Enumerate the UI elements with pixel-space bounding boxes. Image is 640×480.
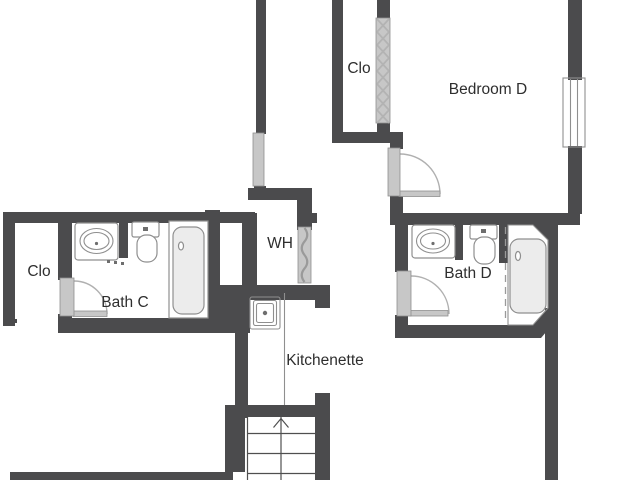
bath-d-door-panel — [410, 311, 448, 317]
wall-segment — [390, 213, 580, 225]
wall-segment — [242, 213, 257, 300]
window-frame — [563, 78, 585, 147]
dash-mark — [114, 261, 117, 264]
toilet-tank-lever — [143, 227, 148, 231]
wall-segment — [568, 146, 582, 214]
toilet-bowl — [474, 237, 495, 264]
closet-sliding-door — [376, 18, 390, 123]
bath-c-toilet — [132, 222, 159, 262]
room-label-bath-c: Bath C — [101, 294, 148, 311]
wall-segment — [377, 0, 390, 19]
wall-segment — [58, 212, 72, 280]
tub-basin — [173, 227, 204, 314]
hall-doorway — [253, 133, 264, 186]
bedroom-d-door-panel — [399, 191, 440, 197]
tub-basin — [510, 239, 546, 313]
wall-segment — [315, 295, 330, 308]
wall-segment — [8, 319, 17, 323]
wall-segment — [254, 186, 266, 194]
wall-segment — [332, 132, 403, 143]
wall-segment — [315, 393, 330, 405]
bedroom-d-door-swing-arc — [400, 154, 440, 194]
tub-faucet — [516, 252, 521, 261]
bath-d-tub-alcove — [506, 225, 549, 325]
wall-segment — [307, 213, 317, 223]
room-label-wh: WH — [267, 235, 293, 252]
tub-faucet — [179, 242, 184, 250]
wall-segment — [225, 405, 245, 472]
dash-mark — [107, 260, 110, 263]
sink-drain — [263, 311, 267, 315]
wall-segment — [58, 318, 220, 333]
wall-segment — [395, 325, 535, 338]
bedroom-d-window — [563, 78, 585, 147]
bath-c-door — [60, 278, 107, 317]
bath-d-toilet — [470, 225, 497, 264]
stairs — [248, 417, 316, 480]
floor-plan-page: Clo Bath C WH Kitchenette Clo Bedroom D … — [0, 0, 640, 480]
bath-c-door-jamb — [60, 278, 74, 316]
wall-segment — [545, 308, 558, 480]
wall-segment — [297, 188, 312, 230]
wall-segment — [395, 225, 408, 272]
wall-segment — [3, 212, 15, 326]
wall-divider — [499, 223, 508, 263]
bath-d-door-swing-arc — [411, 276, 449, 314]
kitchenette-fixtures — [250, 293, 285, 405]
bath-c-door-panel — [73, 311, 107, 317]
floor-plan: Clo Bath C WH Kitchenette Clo Bedroom D … — [0, 0, 640, 480]
wh-flex-door — [298, 227, 311, 283]
wall-segment — [256, 0, 266, 134]
wall-segment — [10, 472, 233, 480]
dash-mark — [121, 262, 124, 265]
room-label-closet-top: Clo — [347, 60, 370, 77]
kitchenette-sink — [250, 297, 280, 329]
bath-c-bathtub — [169, 221, 208, 318]
toilet-tank-lever — [481, 229, 486, 233]
bath-d-door — [397, 271, 449, 316]
bath-d-door-jamb — [397, 271, 411, 316]
sink-drain — [95, 242, 98, 245]
room-label-closet-left: Clo — [27, 263, 50, 280]
toilet-bowl — [137, 235, 157, 262]
room-label-bedroom-d: Bedroom D — [449, 81, 527, 98]
room-label-kitchenette: Kitchenette — [286, 352, 364, 369]
wall-segment — [390, 195, 403, 214]
wall-divider — [119, 212, 128, 258]
bedroom-d-door-jamb — [388, 148, 400, 196]
bedroom-d-door — [388, 148, 440, 197]
wall-segment — [235, 293, 248, 418]
room-label-bath-d: Bath D — [444, 265, 491, 282]
bath-d-vanity-sink — [412, 225, 455, 258]
bath-c-dashed-marks — [107, 260, 124, 265]
bath-c-vanity-sink — [75, 223, 118, 260]
wall-segment — [332, 0, 343, 143]
wall-segment — [315, 405, 330, 480]
wall-divider — [455, 223, 463, 260]
sink-drain — [431, 242, 434, 245]
wall-segment — [568, 0, 582, 80]
